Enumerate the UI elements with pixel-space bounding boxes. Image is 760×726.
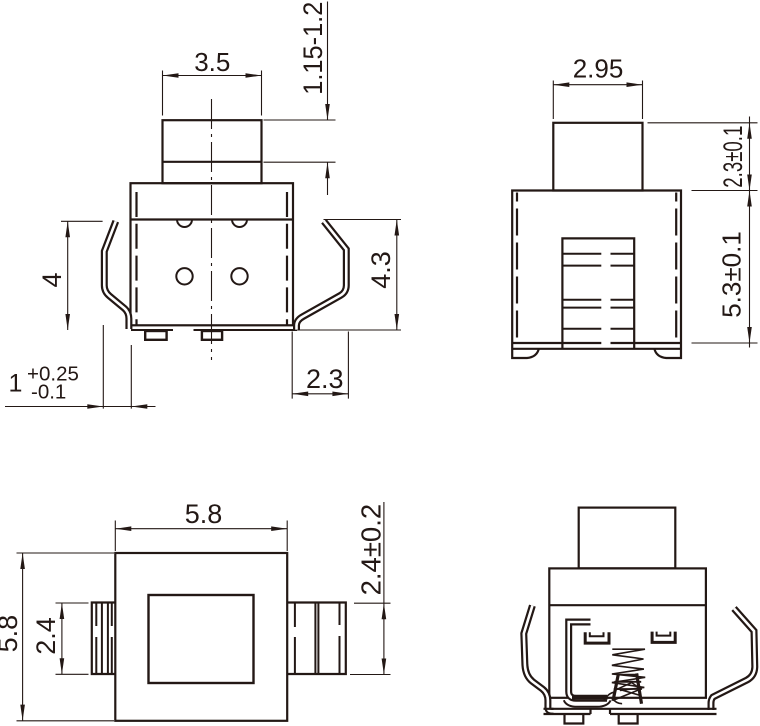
svg-text:5.3±0.1: 5.3±0.1 [717,231,747,318]
svg-text:3.5: 3.5 [194,47,230,77]
svg-text:2.4±0.2: 2.4±0.2 [355,504,386,596]
svg-text:-0.1: -0.1 [31,381,66,404]
svg-text:4: 4 [37,272,67,287]
svg-text:2.4: 2.4 [31,617,61,655]
svg-text:2.3±0.1: 2.3±0.1 [718,126,748,188]
svg-text:1.15-1.2: 1.15-1.2 [298,2,328,95]
svg-text:1: 1 [9,370,23,398]
svg-text:2.95: 2.95 [573,53,624,83]
svg-text:2.3: 2.3 [306,364,344,394]
svg-text:5.8: 5.8 [185,499,223,529]
svg-text:5.8: 5.8 [0,615,23,653]
svg-text:4.3: 4.3 [366,251,396,289]
